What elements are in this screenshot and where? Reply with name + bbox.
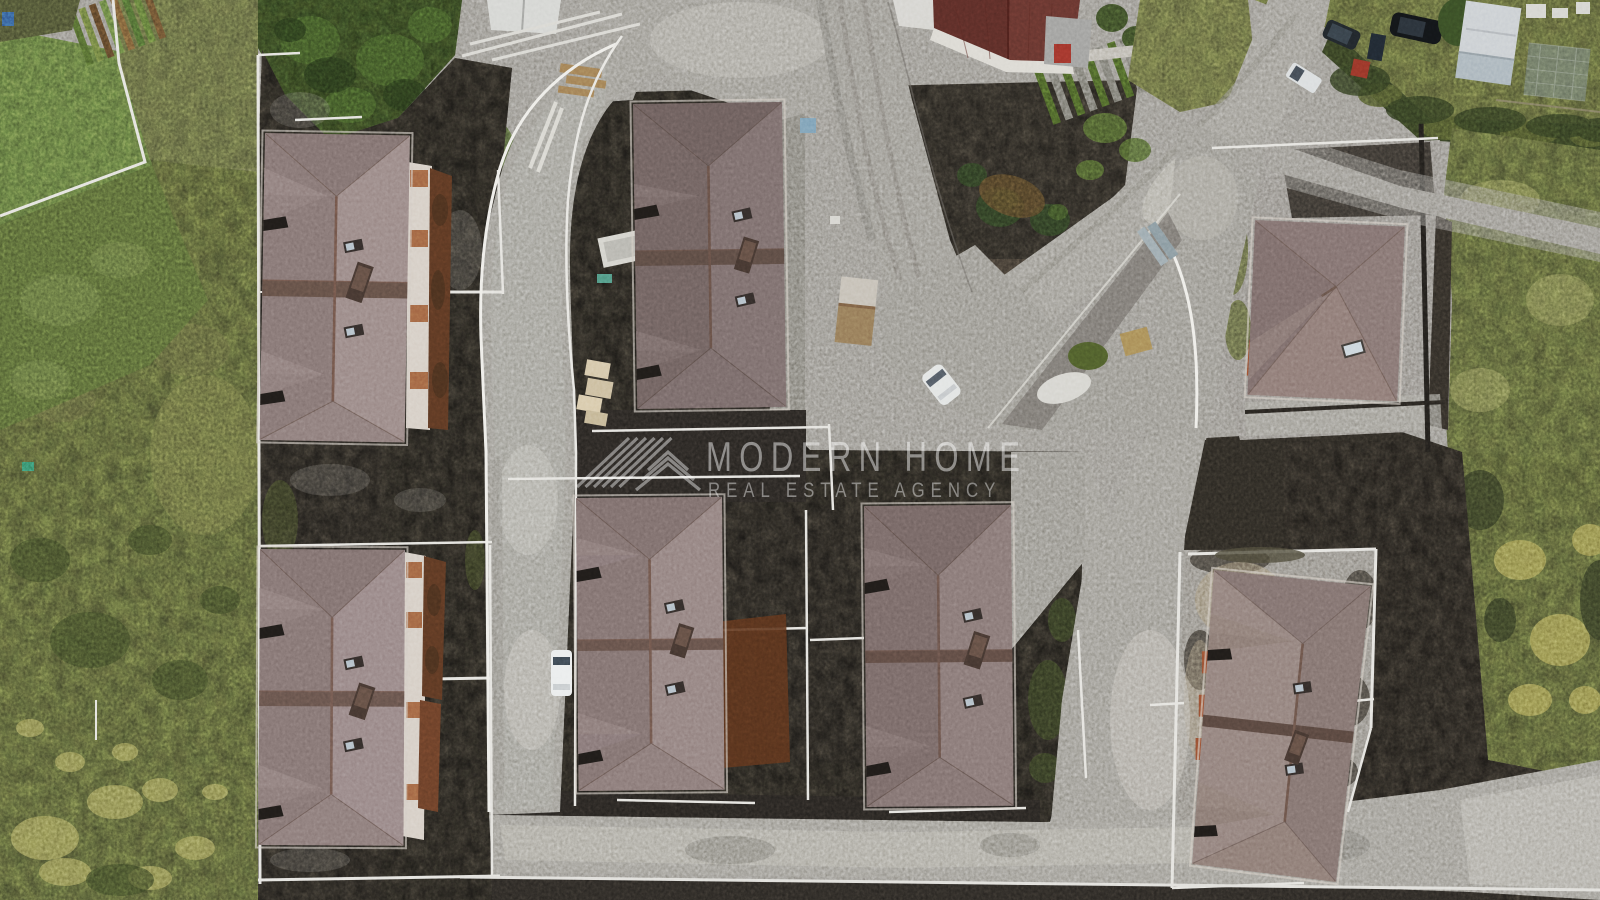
svg-text:REAL ESTATE AGENCY: REAL ESTATE AGENCY xyxy=(708,479,1001,502)
svg-text:MODERN HOME: MODERN HOME xyxy=(706,433,1027,480)
